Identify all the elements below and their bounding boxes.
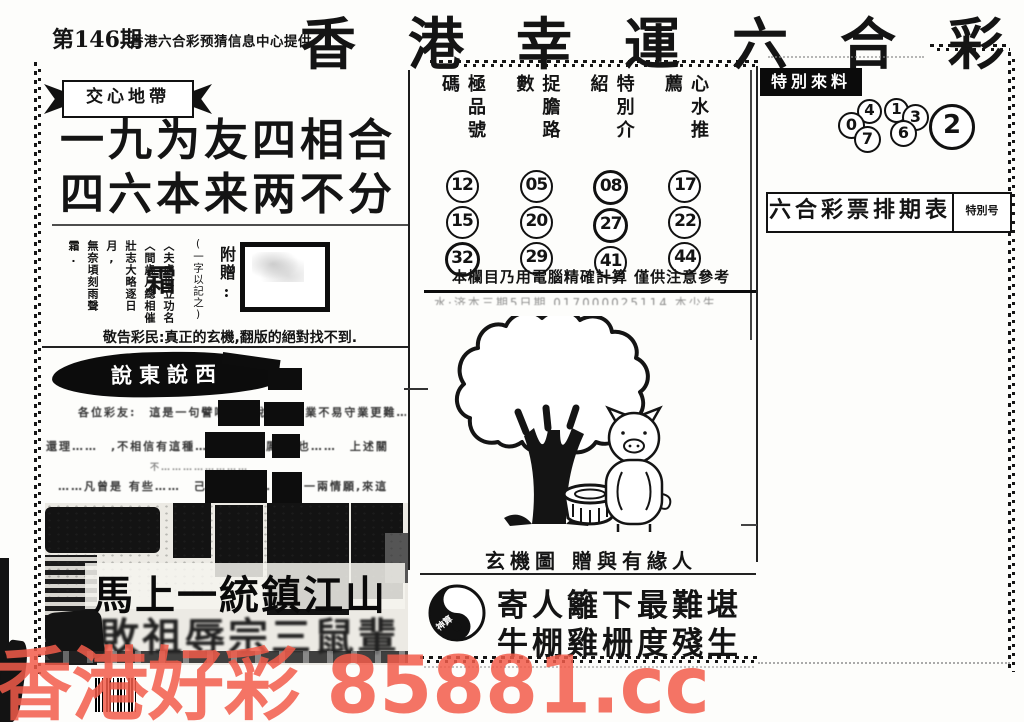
ink-blob	[218, 400, 260, 426]
right-bottom-faint-line	[758, 662, 1010, 664]
pick-column: 特別介紹 08 27 41	[579, 74, 643, 279]
computer-disclaimer: 本欄目乃用電腦精確計算 僅供注意參考	[428, 266, 754, 287]
pick-column: 捉膽路數 05 20 29	[504, 74, 568, 279]
top-right-chain-border	[930, 44, 1010, 51]
mystery-caption: 玄機圖 贈與有緣人	[428, 545, 754, 574]
ink-blob	[272, 434, 300, 458]
gift-poem: 〈夫處世立功名 〈間歲月總相催 壯志大略逐日月, 無奈頃刻雨聲霜.	[64, 240, 178, 332]
number-picks-table: 極品號碼 12 15 32 捉膽路數 05 20 29 特別介紹 08 27 4…	[430, 74, 717, 279]
slogan-line-2: 四六本来两不分	[60, 158, 396, 222]
pig	[606, 408, 670, 532]
divider-tick	[404, 388, 428, 390]
ink-blob	[268, 368, 302, 390]
ribbon-banner: 交心地帶	[62, 80, 194, 118]
pick-column-header: 捉膽路數	[510, 74, 562, 164]
special-final-digit: 2	[929, 104, 975, 150]
left-chain-border	[34, 62, 41, 674]
gift-section-topline	[52, 224, 408, 226]
verse-section-topline	[420, 573, 756, 575]
mystery-picture	[436, 316, 742, 542]
gossip-section-topline	[42, 346, 408, 348]
special-digit: 6	[890, 120, 917, 147]
middle-top-chain-border	[430, 60, 760, 67]
issue-number: 第146期	[52, 22, 142, 54]
pick-number: 08	[593, 170, 628, 205]
disclaimer-underline	[424, 290, 756, 293]
poem-line: 〈夫處世立功名	[159, 240, 178, 332]
pick-column-header: 心水推薦	[659, 74, 711, 164]
poem-line: 壯志大略逐日月,	[102, 240, 140, 332]
pick-column: 心水推薦 17 22 44	[653, 74, 717, 279]
divider-tick-2	[741, 524, 757, 526]
poem-line: 〈間歲月總相催	[140, 240, 159, 332]
special-tips-label: 特別來料	[760, 68, 862, 96]
right-chain-border	[1008, 52, 1015, 672]
gift-label: 附贈:	[214, 246, 238, 326]
watermark-text: 香港好彩 85881.cc	[0, 620, 710, 722]
pick-number: 27	[593, 208, 628, 243]
pick-number: 15	[446, 206, 479, 239]
ink-blob	[205, 470, 267, 504]
pick-column-header: 極品號碼	[436, 74, 488, 164]
pick-column: 極品號碼 12 15 32	[430, 74, 494, 279]
pick-numbers: 12 15 32	[445, 170, 480, 277]
schedule-table-header: 六合彩票排期表 特別号	[766, 192, 1012, 233]
pick-number: 17	[668, 170, 701, 203]
left-middle-divider	[408, 70, 410, 570]
top-right-dotted-line	[768, 56, 924, 58]
pick-column-header: 特別介紹	[585, 74, 637, 164]
pick-numbers: 17 22 44	[668, 170, 701, 275]
pick-number: 12	[446, 170, 479, 203]
gift-box-smudge	[252, 252, 304, 282]
page-title: 香港幸運六合彩	[300, 0, 1024, 81]
pick-number: 05	[520, 170, 553, 203]
schedule-tag: 特別号	[952, 194, 1010, 231]
poem-line: 無奈頃刻雨聲霜.	[64, 240, 102, 332]
lottery-tip-sheet: 第146期 香港六合彩预猜信息中心提供 香港幸運六合彩 交心地帶 一九为友四相合…	[0, 0, 1024, 722]
pick-numbers: 05 20 29	[520, 170, 553, 275]
ink-blob	[264, 402, 304, 426]
provider-text: 香港六合彩预猜信息中心提供	[130, 30, 312, 50]
anti-piracy-notice: 敬告彩民:真正的玄機,翻版的絕對找不到.	[60, 327, 400, 347]
ink-blob	[272, 472, 302, 504]
middle-right-divider	[756, 66, 758, 562]
schedule-title: 六合彩票排期表	[768, 194, 952, 231]
faded-clipped-line: 水·济本三期5日期 017000025114 本少生	[434, 294, 752, 305]
pick-numbers: 08 27 41	[593, 170, 628, 279]
pick-number: 20	[520, 206, 553, 239]
ink-blob	[205, 432, 265, 458]
gift-note: (一字以記之)	[191, 238, 206, 330]
pick-number: 22	[668, 206, 701, 239]
special-digit: 7	[854, 126, 881, 153]
